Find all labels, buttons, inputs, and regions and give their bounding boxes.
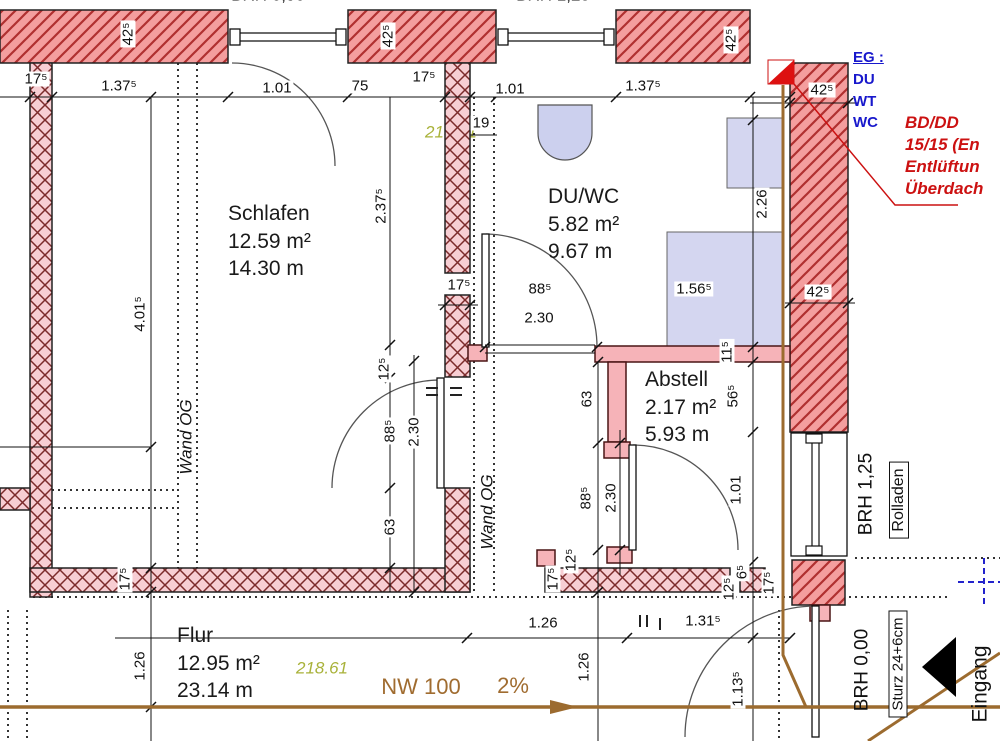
- og-dotted-lines: [8, 63, 1000, 741]
- floor-plan-drawing: [0, 0, 1000, 741]
- door-sill: [485, 345, 595, 353]
- interior-walls: [0, 63, 765, 597]
- fixture-duct: [727, 118, 783, 188]
- shower-tray: [667, 232, 783, 346]
- pipe-flow-arrow: [550, 700, 578, 714]
- survey-cross: [958, 558, 1000, 606]
- floor-plan: 218.61: [0, 0, 1000, 741]
- washbasin: [538, 105, 592, 160]
- dimension-lines: [0, 97, 858, 741]
- drain-pipes: [0, 85, 1000, 741]
- entrance-arrow-icon: [922, 637, 956, 697]
